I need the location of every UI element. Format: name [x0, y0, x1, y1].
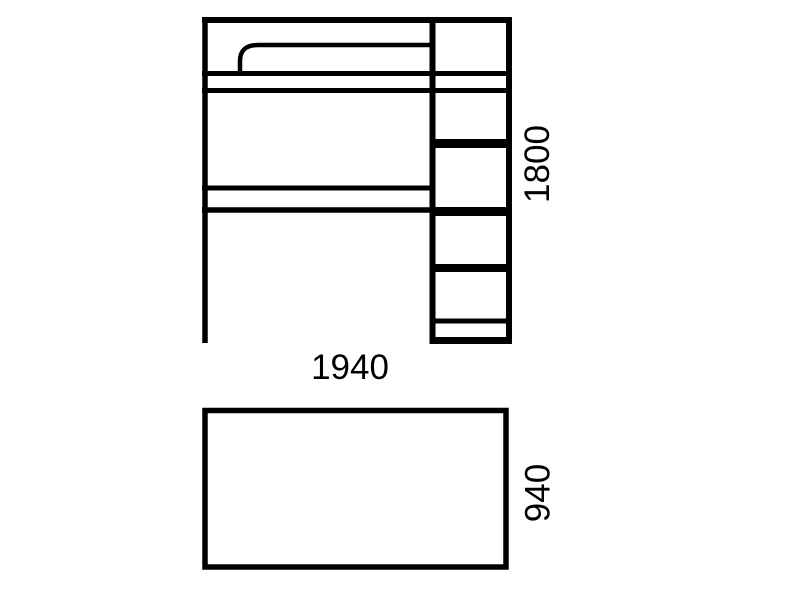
drawing-canvas: 1940 1800 940	[0, 0, 800, 600]
safety-rail	[240, 45, 432, 73]
depth-dimension-label: 940	[518, 464, 557, 522]
top-view	[205, 411, 506, 568]
top-view-outline	[205, 411, 506, 568]
height-dimension-label: 1800	[518, 125, 557, 203]
width-dimension-label: 1940	[311, 348, 389, 387]
dimension-drawing: 1940 1800 940	[0, 0, 800, 600]
front-view	[202, 17, 512, 343]
